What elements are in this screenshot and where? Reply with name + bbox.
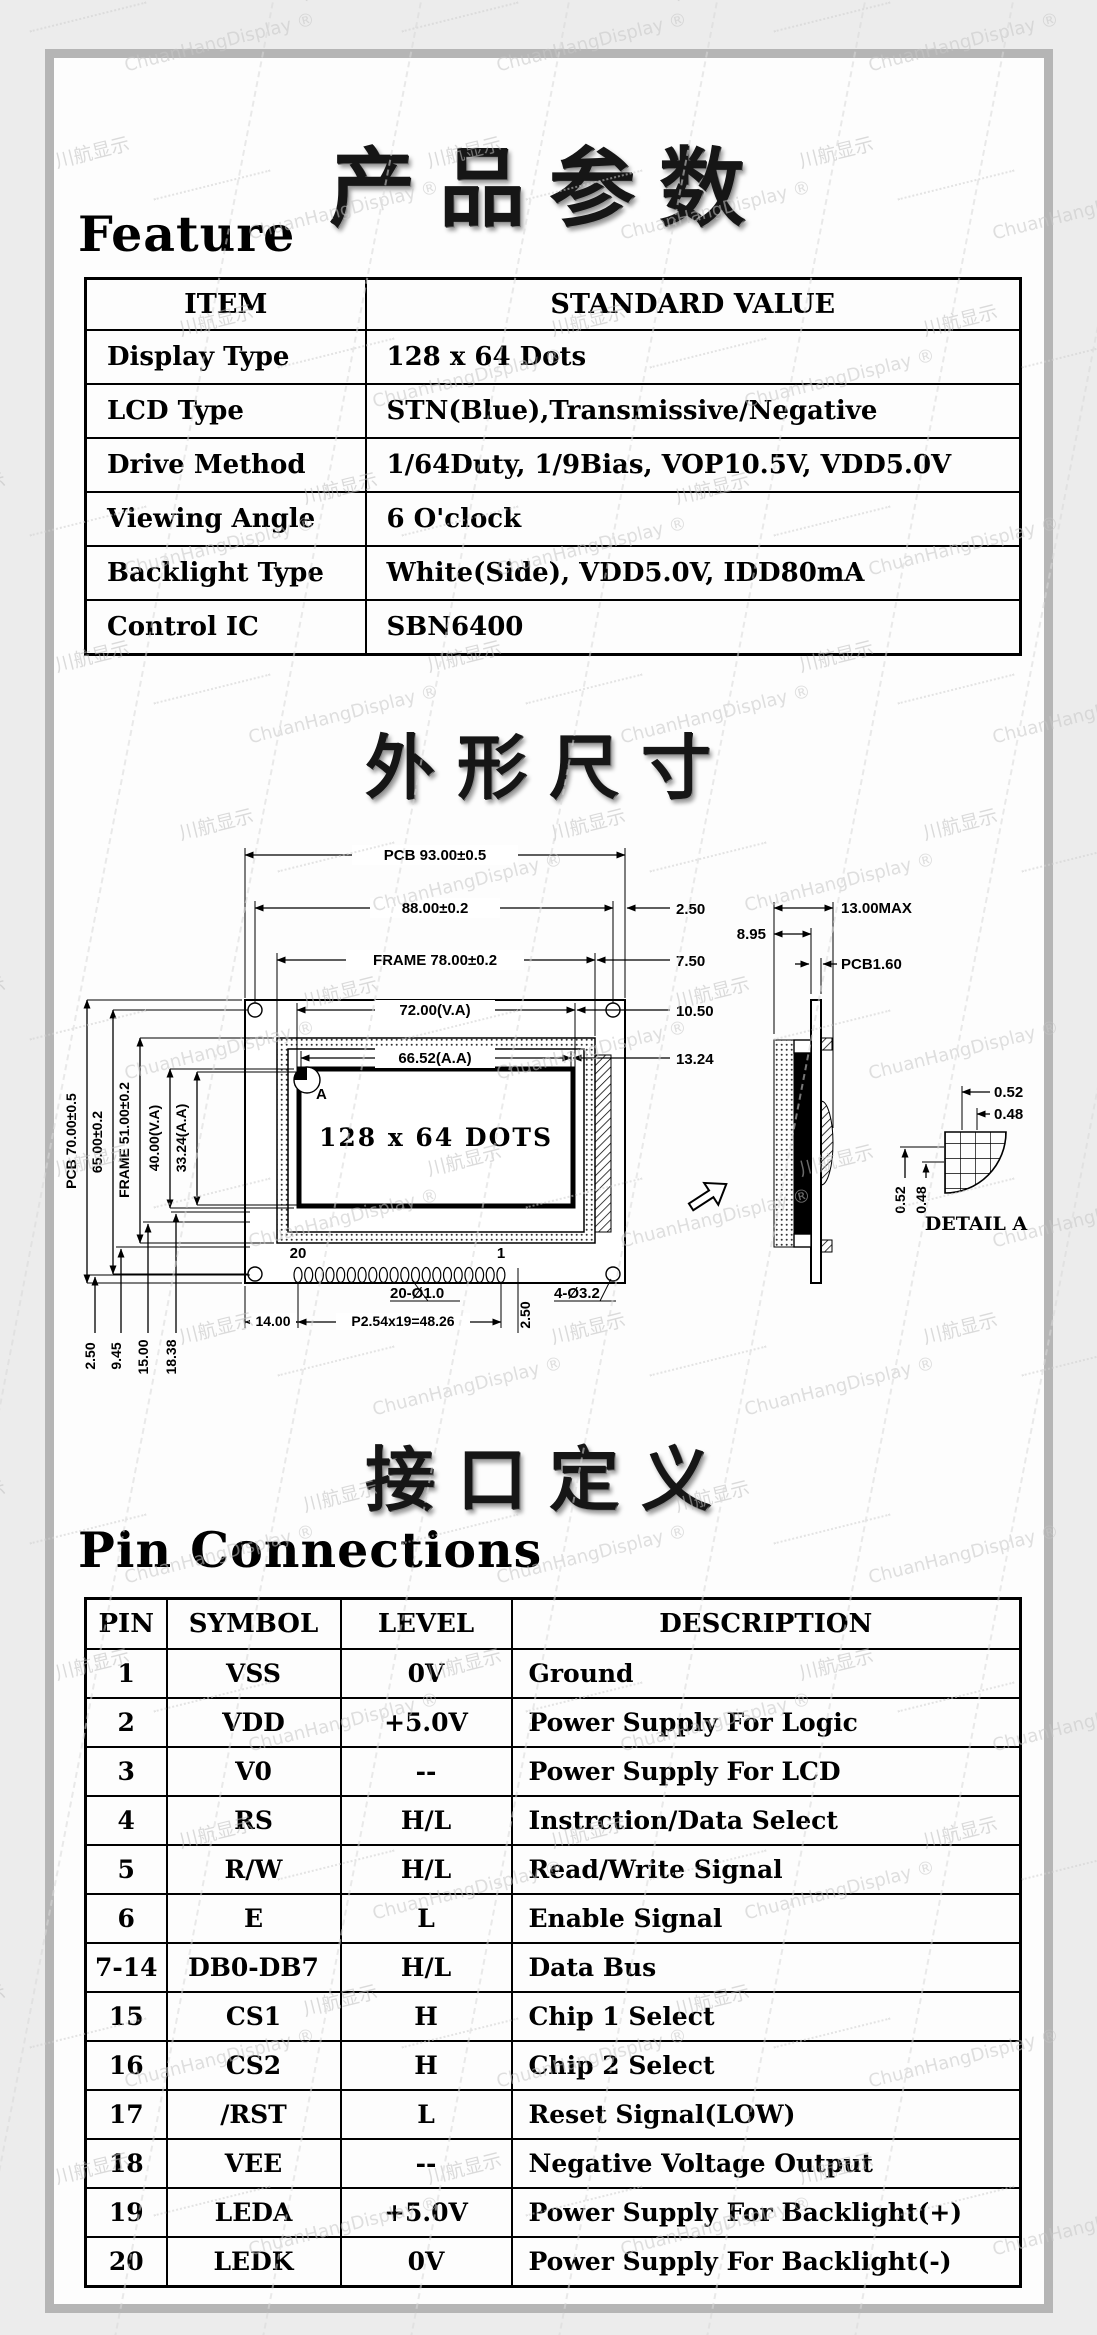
table-cell: Control IC [86, 600, 366, 655]
watermark-dotted-line [402, 2, 519, 33]
svg-text:FRAME 78.00±0.2: FRAME 78.00±0.2 [373, 952, 497, 969]
table-cell: H/L [341, 1796, 512, 1845]
table-cell: L [341, 2090, 512, 2139]
backlight-bump [821, 1101, 833, 1185]
detail-a-title: DETAIL A [925, 1213, 1028, 1235]
pin-hole [444, 1268, 452, 1283]
table-row: 19LEDA+5.0VPower Supply For Backlight(+) [86, 2188, 1021, 2237]
table-header-row: PIN SYMBOL LEVEL DESCRIPTION [86, 1599, 1021, 1650]
table-row: 15CS1HChip 1 Select [86, 1992, 1021, 2041]
table-row: 7-14DB0-DB7H/LData Bus [86, 1943, 1021, 1992]
table-cell: -- [341, 2139, 512, 2188]
side-view: 13.00MAX 8.95 PCB1.60 [737, 900, 912, 1283]
table-header-row: ITEM STANDARD VALUE [86, 279, 1021, 331]
table-row: 1VSS0VGround [86, 1649, 1021, 1698]
column-header-item: ITEM [86, 279, 366, 331]
table-cell: Power Supply For Backlight(-) [512, 2237, 1021, 2287]
svg-text:72.00(V.A): 72.00(V.A) [399, 1002, 470, 1019]
column-header-symbol: SYMBOL [167, 1599, 341, 1650]
svg-text:2.50: 2.50 [676, 901, 705, 918]
svg-text:0.52: 0.52 [892, 1186, 908, 1213]
table-cell: -- [341, 1747, 512, 1796]
watermark-text-cn: 川航显示 [0, 465, 8, 510]
pin-hole [379, 1268, 387, 1283]
svg-text:10.50: 10.50 [676, 1003, 714, 1020]
table-cell: Power Supply For LCD [512, 1747, 1021, 1796]
table-cell: /RST [167, 2090, 341, 2139]
table-cell: VDD [167, 1698, 341, 1747]
svg-text:13.00MAX: 13.00MAX [841, 900, 912, 917]
table-cell: Chip 2 Select [512, 2041, 1021, 2090]
table-row: 5R/WH/LRead/Write Signal [86, 1845, 1021, 1894]
table-cell: H/L [341, 1943, 512, 1992]
table-cell: 6 [86, 1894, 167, 1943]
svg-text:FRAME 51.00±0.2: FRAME 51.00±0.2 [116, 1082, 132, 1198]
page-root: 产品参数 Feature ITEM STANDARD VALUE Display… [0, 0, 1097, 2335]
svg-text:7.50: 7.50 [676, 953, 705, 970]
svg-text:14.00: 14.00 [255, 1313, 290, 1329]
table-cell: 5 [86, 1845, 167, 1894]
svg-text:8.95: 8.95 [737, 926, 766, 943]
feature-heading: Feature [78, 205, 295, 263]
table-row: Backlight TypeWhite(Side), VDD5.0V, IDD8… [86, 546, 1021, 600]
column-header-standard-value: STANDARD VALUE [366, 279, 1021, 331]
table-cell: STN(Blue),Transmissive/Negative [366, 384, 1021, 438]
pin-hole [315, 1268, 323, 1283]
table-cell: Negative Voltage Output [512, 2139, 1021, 2188]
table-cell: VEE [167, 2139, 341, 2188]
table-row: Drive Method1/64Duty, 1/9Bias, VOP10.5V,… [86, 438, 1021, 492]
front-view: 128 x 64 DOTS A 20 1 [245, 1000, 625, 1283]
column-header-description: DESCRIPTION [512, 1599, 1021, 1650]
table-cell: CS1 [167, 1992, 341, 2041]
watermark-text-cn: 川航显示 [0, 1473, 8, 1518]
svg-text:4-Ø3.2: 4-Ø3.2 [554, 1285, 600, 1302]
table-cell: Chip 1 Select [512, 1992, 1021, 2041]
detail-a-letter: A [316, 1086, 327, 1103]
table-row: LCD TypeSTN(Blue),Transmissive/Negative [86, 384, 1021, 438]
bottom-left-dimensions: 2.50 9.45 15.00 18.38 [82, 1212, 250, 1375]
table-cell: 0V [341, 2237, 512, 2287]
table-cell: H [341, 2041, 512, 2090]
outline-drawing: 128 x 64 DOTS A 20 1 PCB 93.00±0.5 88.00… [60, 828, 1050, 1400]
table-row: 16CS2HChip 2 Select [86, 2041, 1021, 2090]
svg-text:PCB 93.00±0.5: PCB 93.00±0.5 [384, 847, 486, 864]
svg-text:20-Ø1.0: 20-Ø1.0 [390, 1285, 444, 1302]
svg-text:33.24(A.A): 33.24(A.A) [173, 1104, 189, 1172]
watermark-dotted-line [30, 2, 147, 33]
table-row: Display Type128 x 64 Dots [86, 330, 1021, 384]
pin-hole [305, 1268, 313, 1283]
table-row: 2VDD+5.0VPower Supply For Logic [86, 1698, 1021, 1747]
pin-hole [337, 1268, 345, 1283]
pin-hole [454, 1268, 462, 1283]
watermark-dotted-line [774, 2, 891, 33]
svg-text:18.38: 18.38 [163, 1339, 179, 1374]
mount-hole [248, 1267, 262, 1281]
pin-connections-table: PIN SYMBOL LEVEL DESCRIPTION 1VSS0VGroun… [84, 1597, 1022, 2288]
table-cell: 0V [341, 1649, 512, 1698]
table-cell: 3 [86, 1747, 167, 1796]
pin-connections-heading: Pin Connections [78, 1521, 542, 1579]
table-cell: LCD Type [86, 384, 366, 438]
watermark-text-cn: 川航显示 [672, 0, 752, 6]
table-row: 18VEE--Negative Voltage Output [86, 2139, 1021, 2188]
table-cell: LEDA [167, 2188, 341, 2237]
table-cell: 6 O'clock [366, 492, 1021, 546]
table-cell: Reset Signal(LOW) [512, 2090, 1021, 2139]
pin-hole [476, 1268, 484, 1283]
table-cell: 18 [86, 2139, 167, 2188]
table-cell: 15 [86, 1992, 167, 2041]
table-row: 3V0--Power Supply For LCD [86, 1747, 1021, 1796]
column-header-level: LEVEL [341, 1599, 512, 1650]
table-cell: Enable Signal [512, 1894, 1021, 1943]
svg-text:PCB 70.00±0.5: PCB 70.00±0.5 [63, 1093, 79, 1189]
watermark-text-cn: 川航显示 [300, 0, 380, 6]
table-cell: Data Bus [512, 1943, 1021, 1992]
pin-hole [422, 1268, 430, 1283]
section-title-interface: 接口定义 [45, 1424, 1053, 1525]
table-row: 4RSH/LInstrction/Data Select [86, 1796, 1021, 1845]
pin-hole [358, 1268, 366, 1283]
table-cell: H/L [341, 1845, 512, 1894]
table-cell: Backlight Type [86, 546, 366, 600]
table-cell: Drive Method [86, 438, 366, 492]
table-cell: 1/64Duty, 1/9Bias, VOP10.5V, VDD5.0V [366, 438, 1021, 492]
pin-hole [433, 1268, 441, 1283]
pin-hole [497, 1268, 505, 1283]
mount-hole [248, 1003, 262, 1017]
svg-text:PCB1.60: PCB1.60 [841, 956, 902, 973]
pin1-label: 1 [497, 1245, 505, 1262]
table-cell: 17 [86, 2090, 167, 2139]
table-cell: +5.0V [341, 2188, 512, 2237]
pin-hole [326, 1268, 334, 1283]
watermark-text-cn: 川航显示 [0, 969, 8, 1014]
table-cell: Power Supply For Logic [512, 1698, 1021, 1747]
watermark-text-cn: 川航显示 [0, 1977, 8, 2022]
pin-hole [369, 1268, 377, 1283]
section-title-dimensions: 外形尺寸 [45, 712, 1053, 813]
table-cell: SBN6400 [366, 600, 1021, 655]
table-row: Control ICSBN6400 [86, 600, 1021, 655]
svg-text:40.00(V.A): 40.00(V.A) [146, 1105, 162, 1171]
heat-seal-strip [595, 1055, 611, 1232]
pin-hole [401, 1268, 409, 1283]
column-header-pin: PIN [86, 1599, 167, 1650]
table-cell: RS [167, 1796, 341, 1845]
feature-table: ITEM STANDARD VALUE Display Type128 x 64… [84, 277, 1022, 656]
table-cell: 7-14 [86, 1943, 167, 1992]
table-cell: 20 [86, 2237, 167, 2287]
table-cell: 19 [86, 2188, 167, 2237]
svg-text:0.48: 0.48 [994, 1106, 1023, 1123]
display-dots-label: 128 x 64 DOTS [319, 1123, 553, 1152]
svg-text:0.48: 0.48 [913, 1186, 929, 1213]
table-cell: Power Supply For Backlight(+) [512, 2188, 1021, 2237]
table-row: 20LEDK0VPower Supply For Backlight(-) [86, 2237, 1021, 2287]
table-cell: H [341, 1992, 512, 2041]
direction-arrow [684, 1173, 733, 1218]
svg-text:65.00±0.2: 65.00±0.2 [89, 1111, 105, 1173]
table-row: Viewing Angle6 O'clock [86, 492, 1021, 546]
table-cell: 1 [86, 1649, 167, 1698]
mount-hole [606, 1267, 620, 1281]
svg-text:66.52(A.A): 66.52(A.A) [398, 1050, 471, 1067]
svg-text:9.45: 9.45 [108, 1342, 124, 1369]
svg-text:2.50: 2.50 [82, 1342, 98, 1369]
watermark-text-cn: 川航显示 [0, 0, 8, 6]
table-cell: E [167, 1894, 341, 1943]
pin-hole [390, 1268, 398, 1283]
pin-hole [465, 1268, 473, 1283]
table-cell: 16 [86, 2041, 167, 2090]
table-cell: DB0-DB7 [167, 1943, 341, 1992]
table-cell: 2 [86, 1698, 167, 1747]
svg-text:15.00: 15.00 [135, 1339, 151, 1374]
table-cell: White(Side), VDD5.0V, IDD80mA [366, 546, 1021, 600]
svg-text:13.24: 13.24 [676, 1051, 714, 1068]
table-row: 17/RSTLReset Signal(LOW) [86, 2090, 1021, 2139]
table-cell: Ground [512, 1649, 1021, 1698]
table-cell: VSS [167, 1649, 341, 1698]
table-cell: LEDK [167, 2237, 341, 2287]
table-cell: 4 [86, 1796, 167, 1845]
table-cell: R/W [167, 1845, 341, 1894]
pin-hole [486, 1268, 494, 1283]
table-cell: Read/Write Signal [512, 1845, 1021, 1894]
detail-a: 0.52 0.48 0.52 0.48 DETAIL A [892, 1084, 1027, 1235]
table-cell: Display Type [86, 330, 366, 384]
table-cell: Viewing Angle [86, 492, 366, 546]
pin20-label: 20 [290, 1245, 307, 1262]
svg-text:2.50: 2.50 [517, 1301, 533, 1328]
pin-hole [347, 1268, 355, 1283]
table-cell: CS2 [167, 2041, 341, 2090]
table-cell: L [341, 1894, 512, 1943]
table-row: 6ELEnable Signal [86, 1894, 1021, 1943]
pin-hole [294, 1268, 302, 1283]
table-cell: V0 [167, 1747, 341, 1796]
table-cell: Instrction/Data Select [512, 1796, 1021, 1845]
table-cell: 128 x 64 Dots [366, 330, 1021, 384]
svg-text:P2.54x19=48.26: P2.54x19=48.26 [351, 1313, 454, 1329]
svg-text:88.00±0.2: 88.00±0.2 [402, 900, 469, 917]
svg-text:0.52: 0.52 [994, 1084, 1023, 1101]
table-cell: +5.0V [341, 1698, 512, 1747]
